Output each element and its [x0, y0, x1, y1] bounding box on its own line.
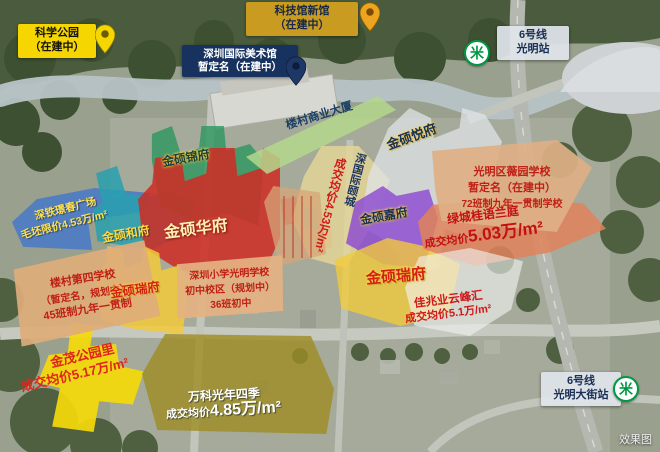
illegible-vertical-text — [276, 196, 313, 258]
art-museum-pin-icon — [286, 56, 306, 86]
badge-line1: 深圳国际美术馆 — [188, 48, 292, 61]
metro-guangming-street-badge: 6号线 光明大街站 — [541, 372, 621, 406]
school-note: 暂定名（在建中） — [468, 179, 556, 195]
science-park-badge: 科学公园 （在建中） — [18, 24, 96, 58]
metro-logo-icon: 米 — [613, 376, 639, 402]
badge-line1: 科学公园 — [24, 27, 90, 41]
badge-line2: （在建中） — [252, 19, 352, 33]
price-value: 4.85万/m² — [210, 399, 282, 420]
badge-line2: 光明大街站 — [547, 389, 615, 403]
aerial-masterplan-map: 楼村第四学校 （暂定名，规划中） 45班制九年一贯制 深圳小学光明学校 初中校区… — [0, 0, 660, 452]
school-shenxiao-box: 深圳小学光明学校 初中校区（规划中） 36班初中 — [175, 255, 286, 319]
price-prefix: 成交均价 — [166, 407, 211, 421]
badge-line2: （在建中） — [24, 41, 90, 55]
art-museum-badge: 深圳国际美术馆 暂定名（在建中） — [182, 45, 298, 77]
badge-line2: 光明站 — [503, 43, 563, 57]
school-scale: 36班初中 — [210, 293, 252, 310]
school-name: 光明区薇园学校 — [474, 163, 551, 179]
badge-line1: 6号线 — [547, 375, 615, 389]
watermark-rendering-note: 效果图 — [619, 434, 652, 447]
metro-logo-icon: 米 — [464, 40, 490, 66]
tech-museum-badge: 科技馆新馆 （在建中） — [246, 2, 358, 36]
metro-guangming-badge: 6号线 光明站 — [497, 26, 569, 60]
badge-line1: 科技馆新馆 — [252, 5, 352, 19]
badge-line1: 6号线 — [503, 29, 563, 43]
science-park-pin-icon — [95, 24, 115, 54]
tech-museum-pin-icon — [360, 2, 380, 32]
badge-line2: 暂定名（在建中） — [188, 61, 292, 74]
